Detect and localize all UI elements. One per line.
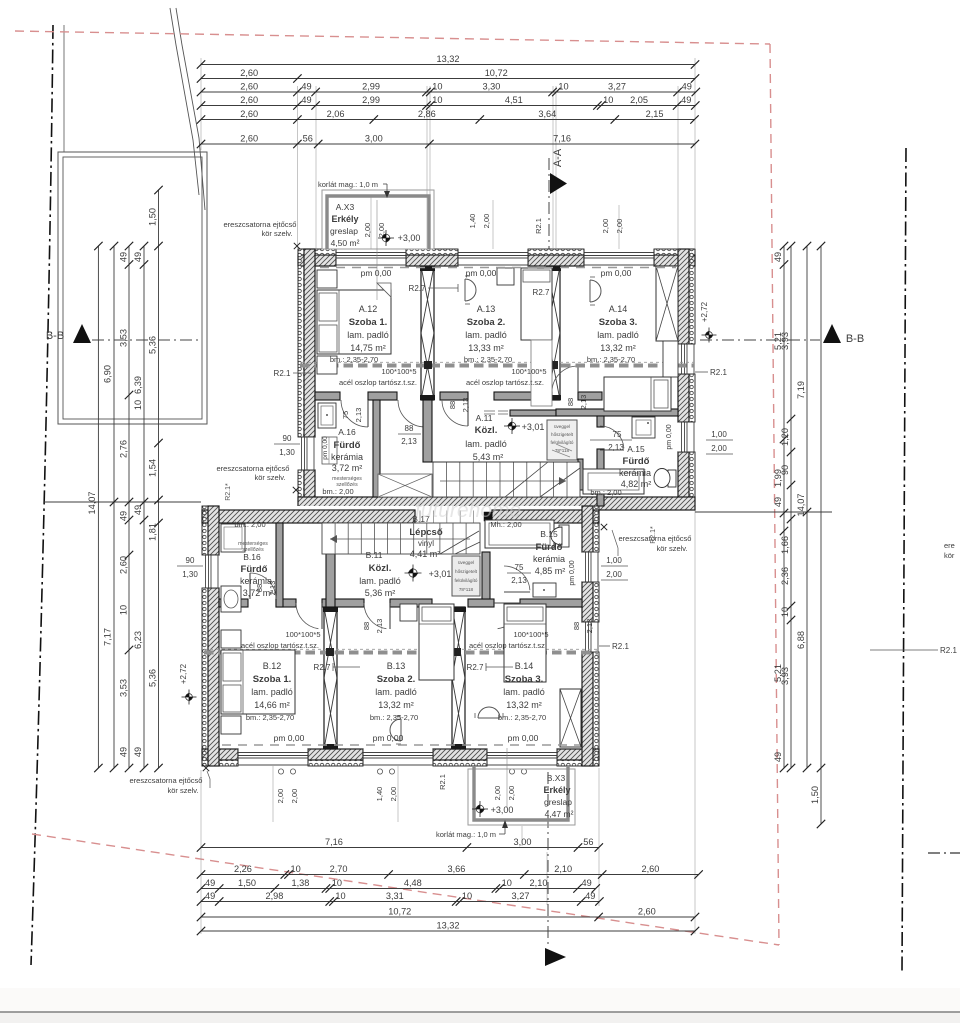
- svg-text:3,30: 3,30: [482, 82, 500, 92]
- svg-text:1,50: 1,50: [810, 786, 820, 804]
- svg-text:14,07: 14,07: [87, 492, 97, 515]
- svg-text:felülvilágító: felülvilágító: [551, 440, 574, 445]
- svg-text:1,38: 1,38: [291, 878, 309, 888]
- svg-text:1,00: 1,00: [711, 430, 727, 439]
- svg-text:hőszigetelt: hőszigetelt: [551, 432, 574, 437]
- svg-text:3,53: 3,53: [119, 679, 129, 697]
- svg-text:1,00: 1,00: [606, 556, 622, 565]
- svg-text:R2.1: R2.1: [438, 774, 447, 790]
- svg-text:pm 0,00: pm 0,00: [666, 424, 673, 449]
- svg-text:1,50: 1,50: [238, 878, 256, 888]
- svg-text:3,64: 3,64: [538, 109, 556, 119]
- svg-text:2,60: 2,60: [240, 82, 258, 92]
- svg-text:Erkély: Erkély: [331, 214, 358, 224]
- svg-text:B.13: B.13: [387, 661, 406, 671]
- svg-text:A.11: A.11: [476, 413, 493, 423]
- svg-text:2,36: 2,36: [780, 567, 790, 585]
- svg-text:acél oszlop tartósz.t.sz.: acél oszlop tartósz.t.sz.: [466, 378, 544, 387]
- svg-text:14,75 m²: 14,75 m²: [350, 343, 386, 353]
- svg-text:R2.7: R2.7: [533, 288, 550, 297]
- svg-text:acél oszlop tartósz.t.sz.: acél oszlop tartósz.t.sz.: [241, 641, 319, 650]
- svg-text:14,66 m²: 14,66 m²: [254, 700, 290, 710]
- svg-text:Fürdő: Fürdő: [241, 564, 268, 575]
- svg-text:100*100*5: 100*100*5: [285, 630, 320, 639]
- svg-text:Erkély: Erkély: [543, 785, 570, 795]
- svg-text:kerámia: kerámia: [533, 554, 565, 564]
- svg-text:lam. padló: lam. padló: [251, 687, 293, 697]
- svg-text:bm.: 2,00: bm.: 2,00: [234, 520, 265, 529]
- svg-text:10: 10: [558, 82, 568, 92]
- svg-text:R2.1*: R2.1*: [225, 483, 232, 501]
- svg-text:2,13: 2,13: [268, 581, 277, 596]
- svg-text:R2.7: R2.7: [314, 663, 331, 672]
- svg-text:88: 88: [566, 398, 575, 406]
- svg-text:2,99: 2,99: [362, 82, 380, 92]
- svg-text:3,72 m²: 3,72 m²: [332, 463, 363, 473]
- svg-text:futurehome: futurehome: [415, 499, 521, 522]
- svg-text:10: 10: [780, 607, 790, 617]
- svg-text:49: 49: [133, 747, 143, 757]
- svg-text:2,10: 2,10: [530, 878, 548, 888]
- svg-text:Lépcső: Lépcső: [409, 527, 442, 538]
- svg-text:üveggel: üveggel: [554, 424, 570, 429]
- svg-text:2,00: 2,00: [711, 444, 727, 453]
- svg-text:bm.: 2,35-2,70: bm.: 2,35-2,70: [370, 713, 418, 722]
- svg-text:4,85 m²: 4,85 m²: [535, 566, 566, 576]
- svg-text:R2.1: R2.1: [534, 218, 543, 234]
- svg-text:49: 49: [205, 878, 215, 888]
- svg-text:1,50: 1,50: [148, 208, 158, 226]
- svg-text:2,26: 2,26: [234, 864, 252, 874]
- svg-text:kör szelv.: kör szelv.: [261, 229, 292, 238]
- svg-text:2,13: 2,13: [511, 576, 527, 585]
- svg-text:A.14: A.14: [609, 304, 628, 314]
- svg-text:100*100*5: 100*100*5: [513, 630, 548, 639]
- svg-text:pm 0,00: pm 0,00: [569, 560, 576, 585]
- svg-text:lam. padló: lam. padló: [375, 687, 417, 697]
- svg-text:4,51: 4,51: [505, 95, 523, 105]
- svg-text:2,00: 2,00: [507, 786, 516, 801]
- svg-text:Szoba 1.: Szoba 1.: [349, 317, 388, 328]
- svg-text:6,88: 6,88: [796, 631, 806, 649]
- svg-text:bm.: 2,35-2,70: bm.: 2,35-2,70: [330, 355, 378, 364]
- svg-text:3,53: 3,53: [119, 329, 129, 347]
- svg-text:3,93: 3,93: [780, 332, 790, 350]
- svg-text:+2,72: +2,72: [179, 663, 188, 684]
- svg-text:acél oszlop tartósz.t.sz.: acél oszlop tartósz.t.sz.: [339, 378, 417, 387]
- svg-text:49: 49: [119, 747, 129, 757]
- svg-text:Fürdő: Fürdő: [536, 542, 563, 553]
- svg-text:88: 88: [405, 424, 414, 433]
- svg-text:3,93: 3,93: [780, 667, 790, 685]
- svg-text:bm.: 2,35-2,70: bm.: 2,35-2,70: [246, 713, 294, 722]
- svg-text:R2.7: R2.7: [467, 663, 484, 672]
- svg-text:10: 10: [432, 95, 442, 105]
- svg-text:korlát mag.: 1,0 m: korlát mag.: 1,0 m: [436, 830, 496, 839]
- svg-text:10: 10: [502, 878, 512, 888]
- svg-text:pm 0,00: pm 0,00: [466, 268, 497, 278]
- svg-text:A.16: A.16: [338, 427, 356, 437]
- svg-text:2,00: 2,00: [290, 789, 299, 804]
- svg-text:2,06: 2,06: [327, 109, 345, 119]
- svg-text:75: 75: [613, 430, 622, 439]
- svg-text:1,40: 1,40: [468, 214, 477, 229]
- svg-text:Fürdő: Fürdő: [623, 456, 650, 467]
- svg-text:49: 49: [301, 82, 311, 92]
- svg-text:B-B: B-B: [846, 333, 864, 345]
- svg-text:lam. padló: lam. padló: [359, 576, 401, 586]
- svg-text:5,36: 5,36: [148, 336, 158, 354]
- svg-text:13,33 m²: 13,33 m²: [468, 343, 504, 353]
- svg-text:pm 0,00: pm 0,00: [601, 268, 632, 278]
- svg-text:hőszigetelt: hőszigetelt: [455, 569, 478, 574]
- svg-text:Közl.: Közl.: [475, 425, 498, 436]
- svg-text:3,27: 3,27: [608, 82, 626, 92]
- svg-text:2,05: 2,05: [630, 95, 648, 105]
- svg-text:2,00: 2,00: [615, 219, 624, 234]
- svg-text:2,00: 2,00: [493, 786, 502, 801]
- svg-text:78*118: 78*118: [459, 587, 474, 592]
- svg-text:R2.1: R2.1: [612, 642, 629, 651]
- svg-text:üveggel: üveggel: [458, 560, 474, 565]
- svg-text:49: 49: [681, 95, 691, 105]
- svg-text:49: 49: [205, 891, 215, 901]
- svg-text:Szoba 2.: Szoba 2.: [377, 674, 416, 685]
- svg-text:Szoba 1.: Szoba 1.: [253, 674, 292, 685]
- svg-text:2,60: 2,60: [638, 907, 656, 917]
- svg-text:10: 10: [603, 95, 613, 105]
- svg-text:6,39: 6,39: [133, 376, 143, 394]
- svg-text:13,32 m²: 13,32 m²: [378, 700, 414, 710]
- svg-text:3,00: 3,00: [365, 134, 383, 144]
- svg-text:10: 10: [432, 82, 442, 92]
- svg-text:R2.1: R2.1: [710, 368, 727, 377]
- svg-text:bm.: 2,35-2,70: bm.: 2,35-2,70: [464, 355, 512, 364]
- svg-text:A.12: A.12: [359, 304, 378, 314]
- svg-text:2,00: 2,00: [276, 789, 285, 804]
- svg-text:2,13: 2,13: [375, 619, 384, 634]
- svg-text:+3,00: +3,00: [398, 233, 421, 243]
- svg-text:4,50 m²: 4,50 m²: [331, 238, 360, 248]
- svg-text:2,00: 2,00: [389, 787, 398, 802]
- svg-text:49: 49: [119, 252, 129, 262]
- svg-text:pm 0,00: pm 0,00: [373, 733, 404, 743]
- svg-text:75: 75: [341, 411, 350, 419]
- svg-text:Szoba 2.: Szoba 2.: [467, 317, 506, 328]
- svg-text:100*100*5: 100*100*5: [511, 367, 546, 376]
- svg-text:ereszcsatorna ejtőcső: ereszcsatorna ejtőcső: [130, 776, 203, 785]
- svg-text:pm 0,00: pm 0,00: [508, 733, 539, 743]
- svg-text:2,60: 2,60: [240, 134, 258, 144]
- svg-text:88: 88: [255, 584, 264, 592]
- svg-text:4,82 m²: 4,82 m²: [621, 479, 652, 489]
- svg-text:4,41 m²: 4,41 m²: [410, 549, 441, 559]
- svg-text:49: 49: [133, 252, 143, 262]
- svg-text:2,00: 2,00: [363, 223, 372, 238]
- svg-text:2,99: 2,99: [362, 95, 380, 105]
- svg-text:1,81: 1,81: [148, 523, 158, 541]
- svg-text:3,66: 3,66: [447, 864, 465, 874]
- svg-text:88: 88: [448, 401, 457, 409]
- svg-text:korlát mag.: 1,0 m: korlát mag.: 1,0 m: [318, 180, 378, 189]
- svg-text:49: 49: [581, 878, 591, 888]
- svg-text:4,47 m²: 4,47 m²: [545, 809, 574, 819]
- svg-text:3,31: 3,31: [386, 891, 404, 901]
- svg-text:ereszcsatorna ejtőcső: ereszcsatorna ejtőcső: [224, 220, 297, 229]
- svg-text:bm.: 2,35-2,70: bm.: 2,35-2,70: [498, 713, 546, 722]
- svg-text:bm.: 2,00: bm.: 2,00: [322, 487, 353, 496]
- svg-text:R2.1*: R2.1*: [650, 526, 657, 544]
- svg-text:kör szelv.: kör szelv.: [254, 473, 285, 482]
- svg-text:10: 10: [119, 605, 129, 615]
- svg-text:B.16: B.16: [243, 552, 261, 562]
- svg-text:2,00: 2,00: [482, 214, 491, 229]
- svg-text:7,17: 7,17: [103, 628, 113, 646]
- svg-text:2,13: 2,13: [579, 395, 588, 410]
- svg-text:lam. padló: lam. padló: [347, 330, 389, 340]
- svg-text:2,13: 2,13: [401, 437, 417, 446]
- svg-text:2,60: 2,60: [240, 68, 258, 78]
- svg-text:90: 90: [283, 434, 292, 443]
- svg-text:lam. padló: lam. padló: [503, 687, 545, 697]
- svg-text:100*100*5: 100*100*5: [381, 367, 416, 376]
- svg-text:Szoba 3.: Szoba 3.: [599, 317, 638, 328]
- svg-text:49: 49: [301, 95, 311, 105]
- svg-text:A-A: A-A: [552, 148, 564, 167]
- svg-text:49: 49: [133, 505, 143, 515]
- svg-text:2,00: 2,00: [601, 219, 610, 234]
- svg-text:2,86: 2,86: [418, 109, 436, 119]
- svg-text:2,13: 2,13: [354, 408, 363, 423]
- svg-text:10: 10: [335, 891, 345, 901]
- svg-text:5,43 m²: 5,43 m²: [473, 452, 504, 462]
- svg-text:B.X3: B.X3: [547, 773, 566, 783]
- svg-text:bm.: 2,00: bm.: 2,00: [590, 488, 621, 497]
- svg-text:88: 88: [572, 622, 581, 630]
- svg-text:greslap: greslap: [330, 226, 358, 236]
- svg-text:B.11: B.11: [366, 550, 383, 560]
- svg-text:5,36 m²: 5,36 m²: [365, 588, 396, 598]
- svg-text:+3,01: +3,01: [429, 569, 452, 579]
- svg-text:lam. padló: lam. padló: [597, 330, 639, 340]
- svg-text:kerámia: kerámia: [331, 452, 363, 462]
- svg-text:1,40: 1,40: [375, 787, 384, 802]
- svg-text:Fürdő: Fürdő: [334, 440, 361, 451]
- svg-text:10,72: 10,72: [485, 68, 508, 78]
- svg-text:56: 56: [583, 837, 593, 847]
- svg-text:R2.1: R2.1: [940, 646, 957, 655]
- svg-text:B-B: B-B: [46, 330, 64, 342]
- svg-text:49: 49: [773, 752, 783, 762]
- svg-text:75: 75: [515, 563, 524, 572]
- svg-text:+2,72: +2,72: [700, 301, 709, 322]
- svg-text:felülvilágító: felülvilágító: [455, 578, 478, 583]
- svg-text:2,10: 2,10: [554, 864, 572, 874]
- svg-text:2,13: 2,13: [608, 443, 624, 452]
- svg-text:pm 0,00: pm 0,00: [322, 436, 329, 460]
- svg-text:13,32: 13,32: [437, 921, 460, 931]
- svg-text:ere: ere: [944, 541, 955, 550]
- svg-text:2,13: 2,13: [461, 398, 470, 413]
- svg-text:49: 49: [585, 891, 595, 901]
- svg-text:1,20: 1,20: [780, 428, 790, 446]
- svg-text:49: 49: [682, 82, 692, 92]
- svg-text:+3,00: +3,00: [491, 805, 514, 815]
- svg-text:10: 10: [290, 864, 300, 874]
- svg-text:kerámia: kerámia: [619, 468, 651, 478]
- svg-text:pm 0,00: pm 0,00: [274, 733, 305, 743]
- svg-text:kör szelv.: kör szelv.: [167, 786, 198, 795]
- svg-text:2,60: 2,60: [119, 556, 129, 574]
- svg-text:+3,01: +3,01: [522, 422, 545, 432]
- svg-text:2,76: 2,76: [119, 440, 129, 458]
- svg-text:10: 10: [462, 891, 472, 901]
- svg-text:A.15: A.15: [627, 444, 645, 454]
- svg-text:5,36: 5,36: [148, 669, 158, 687]
- svg-text:2,98: 2,98: [265, 891, 283, 901]
- svg-text:1,54: 1,54: [148, 459, 158, 477]
- svg-text:2,60: 2,60: [641, 864, 659, 874]
- svg-text:2,00: 2,00: [606, 570, 622, 579]
- svg-text:49: 49: [773, 497, 783, 507]
- svg-text:10: 10: [133, 400, 143, 410]
- svg-text:Közl.: Közl.: [369, 563, 392, 574]
- svg-text:49: 49: [773, 252, 783, 262]
- svg-text:ereszcsatorna ejtőcső: ereszcsatorna ejtőcső: [217, 464, 290, 473]
- svg-text:88: 88: [362, 622, 371, 630]
- svg-text:bm.: 2,35-2,70: bm.: 2,35-2,70: [587, 355, 635, 364]
- svg-text:6,90: 6,90: [103, 365, 113, 383]
- svg-text:A.13: A.13: [477, 304, 496, 314]
- svg-text:7,16: 7,16: [553, 134, 571, 144]
- svg-text:4,48: 4,48: [404, 878, 422, 888]
- svg-text:90: 90: [780, 465, 790, 475]
- svg-text:2,60: 2,60: [240, 95, 258, 105]
- svg-text:2,15: 2,15: [646, 109, 664, 119]
- svg-text:3,00: 3,00: [514, 837, 532, 847]
- svg-text:acél oszlop tartósz.t.sz.: acél oszlop tartósz.t.sz.: [469, 641, 547, 650]
- svg-text:kör szelv.: kör szelv.: [656, 544, 687, 553]
- svg-text:14,07: 14,07: [796, 494, 806, 517]
- svg-text:10,72: 10,72: [388, 907, 411, 917]
- svg-text:10: 10: [332, 878, 342, 888]
- svg-text:1,30: 1,30: [279, 448, 295, 457]
- svg-text:lam. padló: lam. padló: [465, 439, 507, 449]
- svg-text:2,13: 2,13: [585, 619, 594, 634]
- svg-text:7,16: 7,16: [325, 837, 343, 847]
- svg-text:A.X3: A.X3: [336, 202, 355, 212]
- svg-text:B.14: B.14: [515, 661, 534, 671]
- svg-text:13,32 m²: 13,32 m²: [506, 700, 542, 710]
- svg-text:B.15: B.15: [540, 529, 558, 539]
- svg-text:vinyl: vinyl: [418, 539, 434, 548]
- svg-text:1,66: 1,66: [780, 536, 790, 554]
- svg-text:lam. padló: lam. padló: [465, 330, 507, 340]
- svg-text:greslap: greslap: [544, 797, 572, 807]
- svg-text:B.12: B.12: [263, 661, 282, 671]
- svg-text:Szoba 3.: Szoba 3.: [505, 674, 544, 685]
- svg-text:R2.1: R2.1: [274, 369, 291, 378]
- svg-text:1,30: 1,30: [182, 570, 198, 579]
- svg-text:56: 56: [303, 134, 313, 144]
- svg-text:R2.7: R2.7: [409, 284, 426, 293]
- svg-text:6,23: 6,23: [133, 631, 143, 649]
- svg-text:3,27: 3,27: [512, 891, 530, 901]
- svg-text:pm 0,00: pm 0,00: [361, 268, 392, 278]
- svg-text:90: 90: [186, 556, 195, 565]
- svg-text:2,60: 2,60: [240, 109, 258, 119]
- svg-text:7,19: 7,19: [796, 381, 806, 399]
- svg-text:49: 49: [119, 511, 129, 521]
- svg-text:2,70: 2,70: [330, 864, 348, 874]
- svg-text:13,32 m²: 13,32 m²: [600, 343, 636, 353]
- svg-text:kör: kör: [944, 551, 955, 560]
- svg-text:13,32: 13,32: [437, 54, 460, 64]
